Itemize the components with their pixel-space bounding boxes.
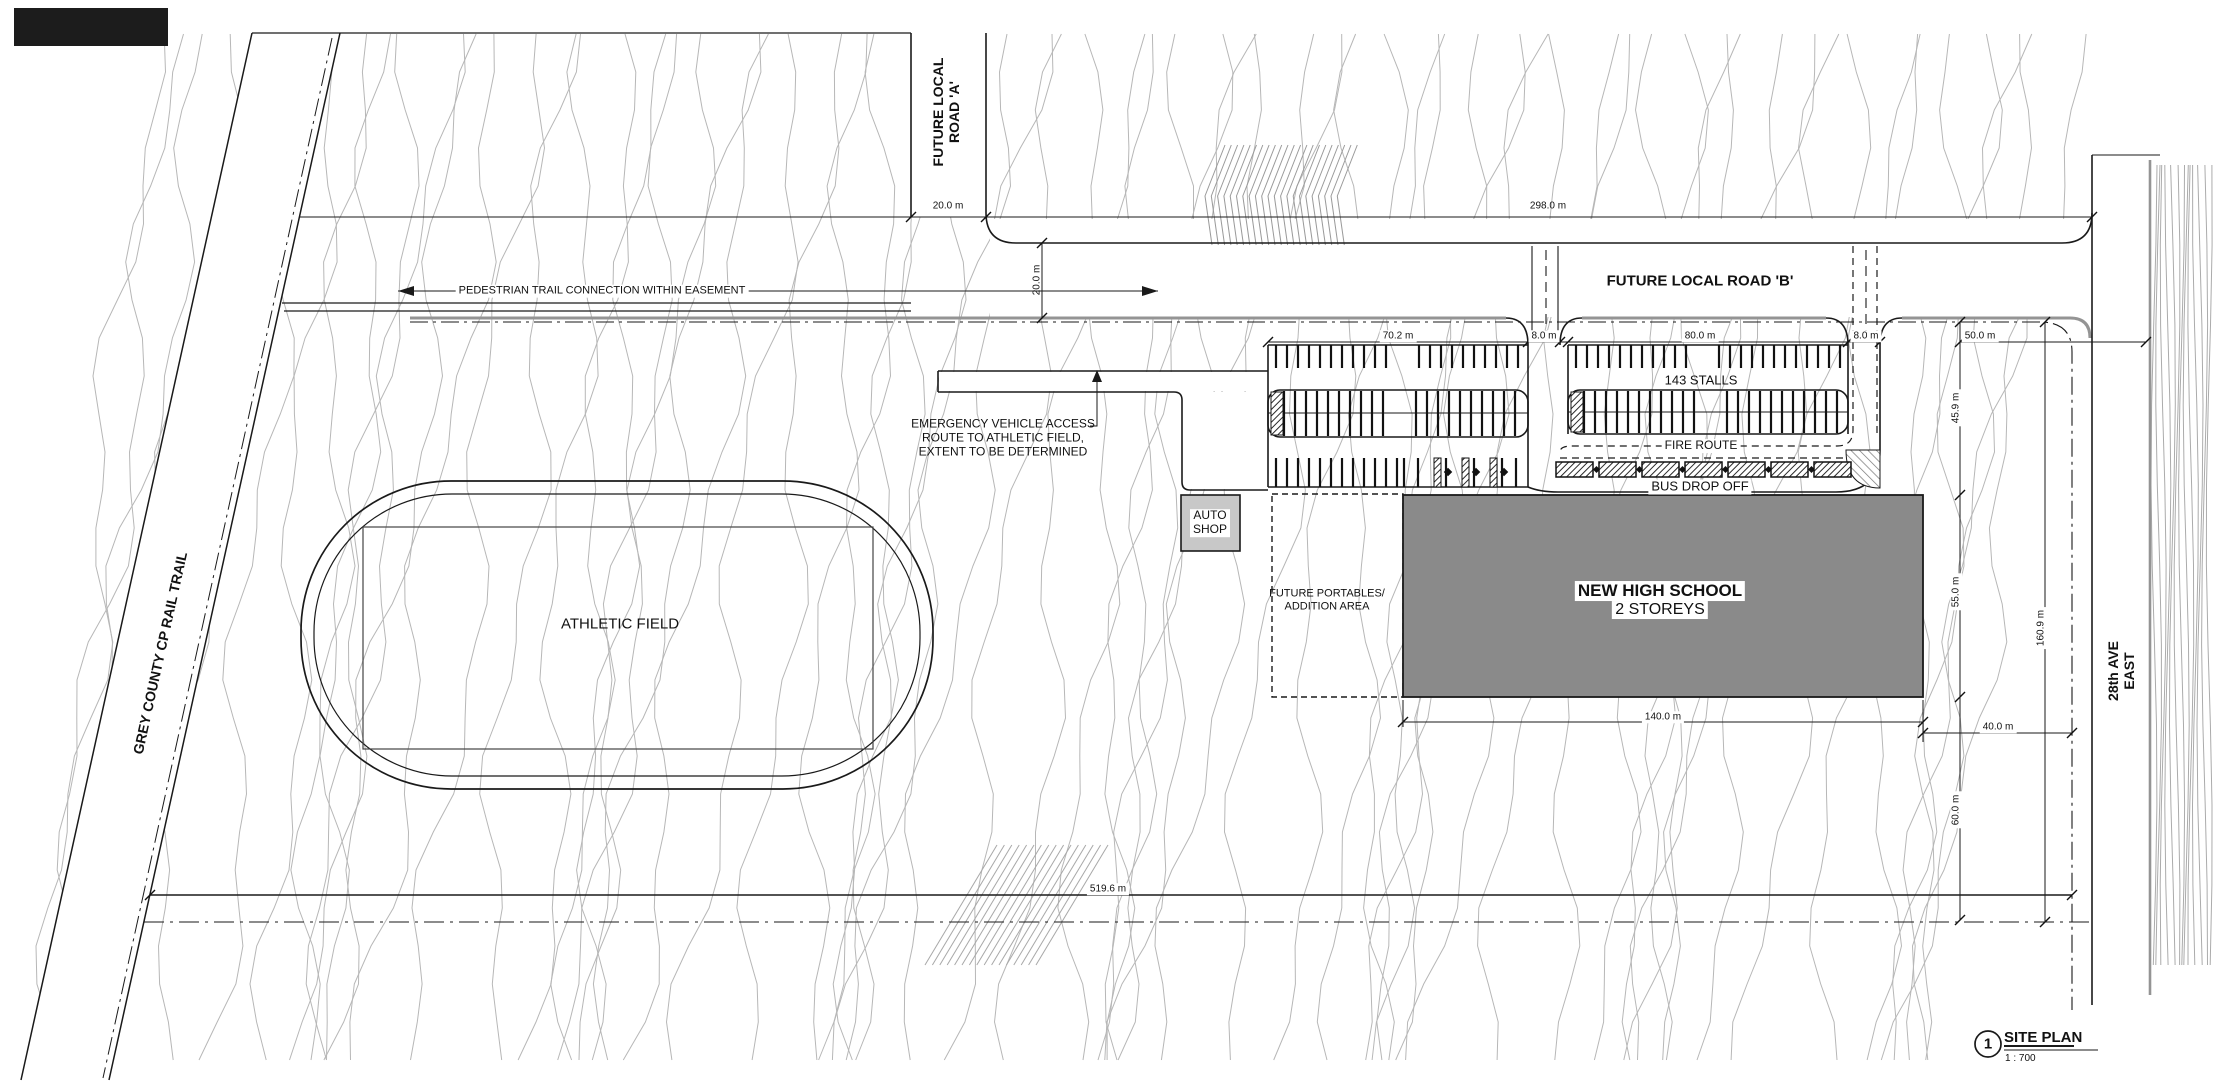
sheet-title: SITE PLAN	[2004, 1029, 2082, 1046]
school-building	[1403, 495, 1923, 697]
site-plan-drawing	[0, 0, 2228, 1086]
title-strip-block	[14, 8, 168, 46]
site-linework	[14, 8, 2160, 1080]
future-portables-area	[1272, 494, 1403, 697]
auto-shop-building	[1181, 495, 1240, 551]
sheet-scale: 1 : 700	[2005, 1053, 2036, 1064]
site-plan-page: FUTURE LOCAL ROAD 'A' 20.0 m 298.0 m FUT…	[0, 0, 2228, 1086]
